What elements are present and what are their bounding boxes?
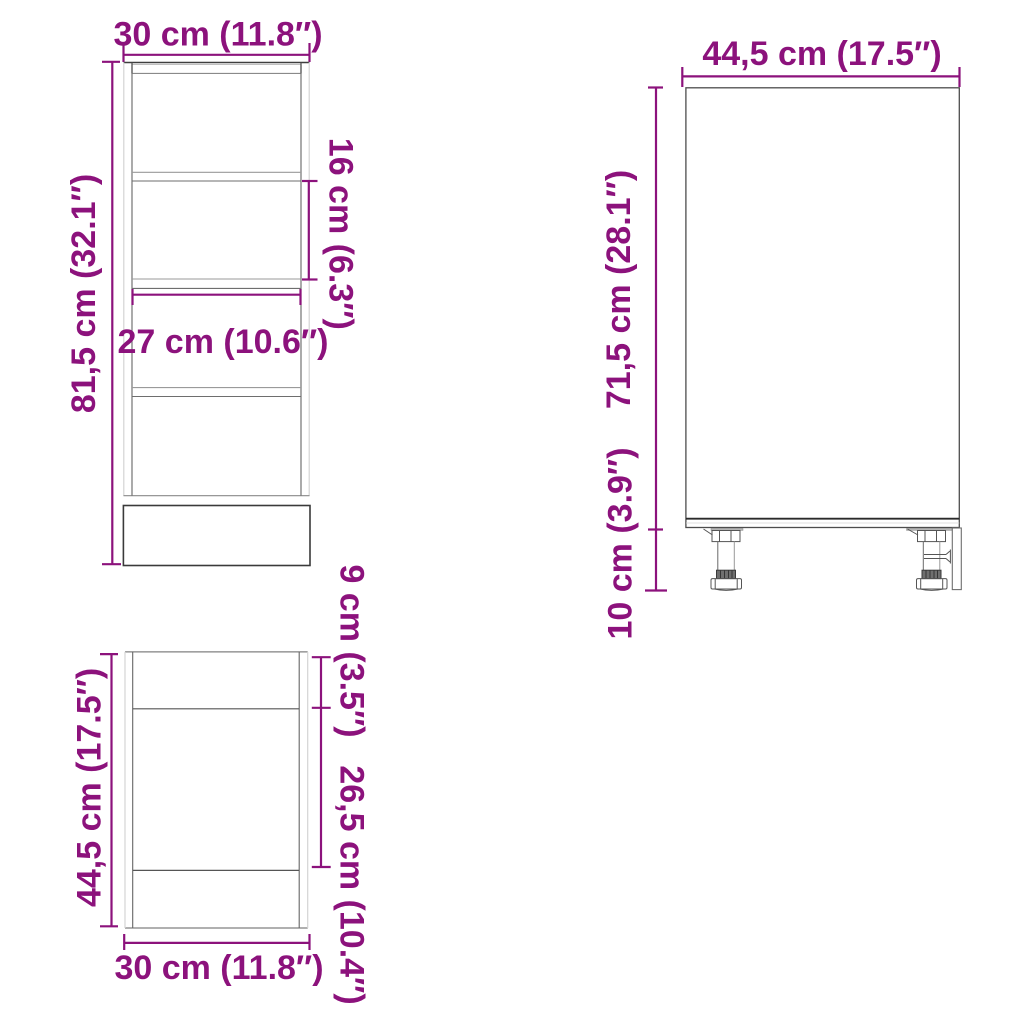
svg-text:44,5 cm (17.5″): 44,5 cm (17.5″) <box>70 668 108 907</box>
svg-text:26,5 cm (10.4″): 26,5 cm (10.4″) <box>333 765 371 1004</box>
svg-text:16 cm (6.3″): 16 cm (6.3″) <box>322 138 360 330</box>
svg-text:44,5 cm (17.5″): 44,5 cm (17.5″) <box>702 35 941 73</box>
svg-text:30 cm (11.8″): 30 cm (11.8″) <box>114 949 323 987</box>
svg-text:9 cm (3.5″): 9 cm (3.5″) <box>333 564 371 737</box>
svg-text:30 cm (11.8″): 30 cm (11.8″) <box>113 15 322 53</box>
svg-text:71,5 cm (28.1″): 71,5 cm (28.1″) <box>600 170 638 409</box>
svg-text:27 cm (10.6″): 27 cm (10.6″) <box>118 323 329 361</box>
svg-text:10 cm (3.9″): 10 cm (3.9″) <box>601 447 639 639</box>
svg-text:81,5 cm (32.1″): 81,5 cm (32.1″) <box>65 174 103 413</box>
